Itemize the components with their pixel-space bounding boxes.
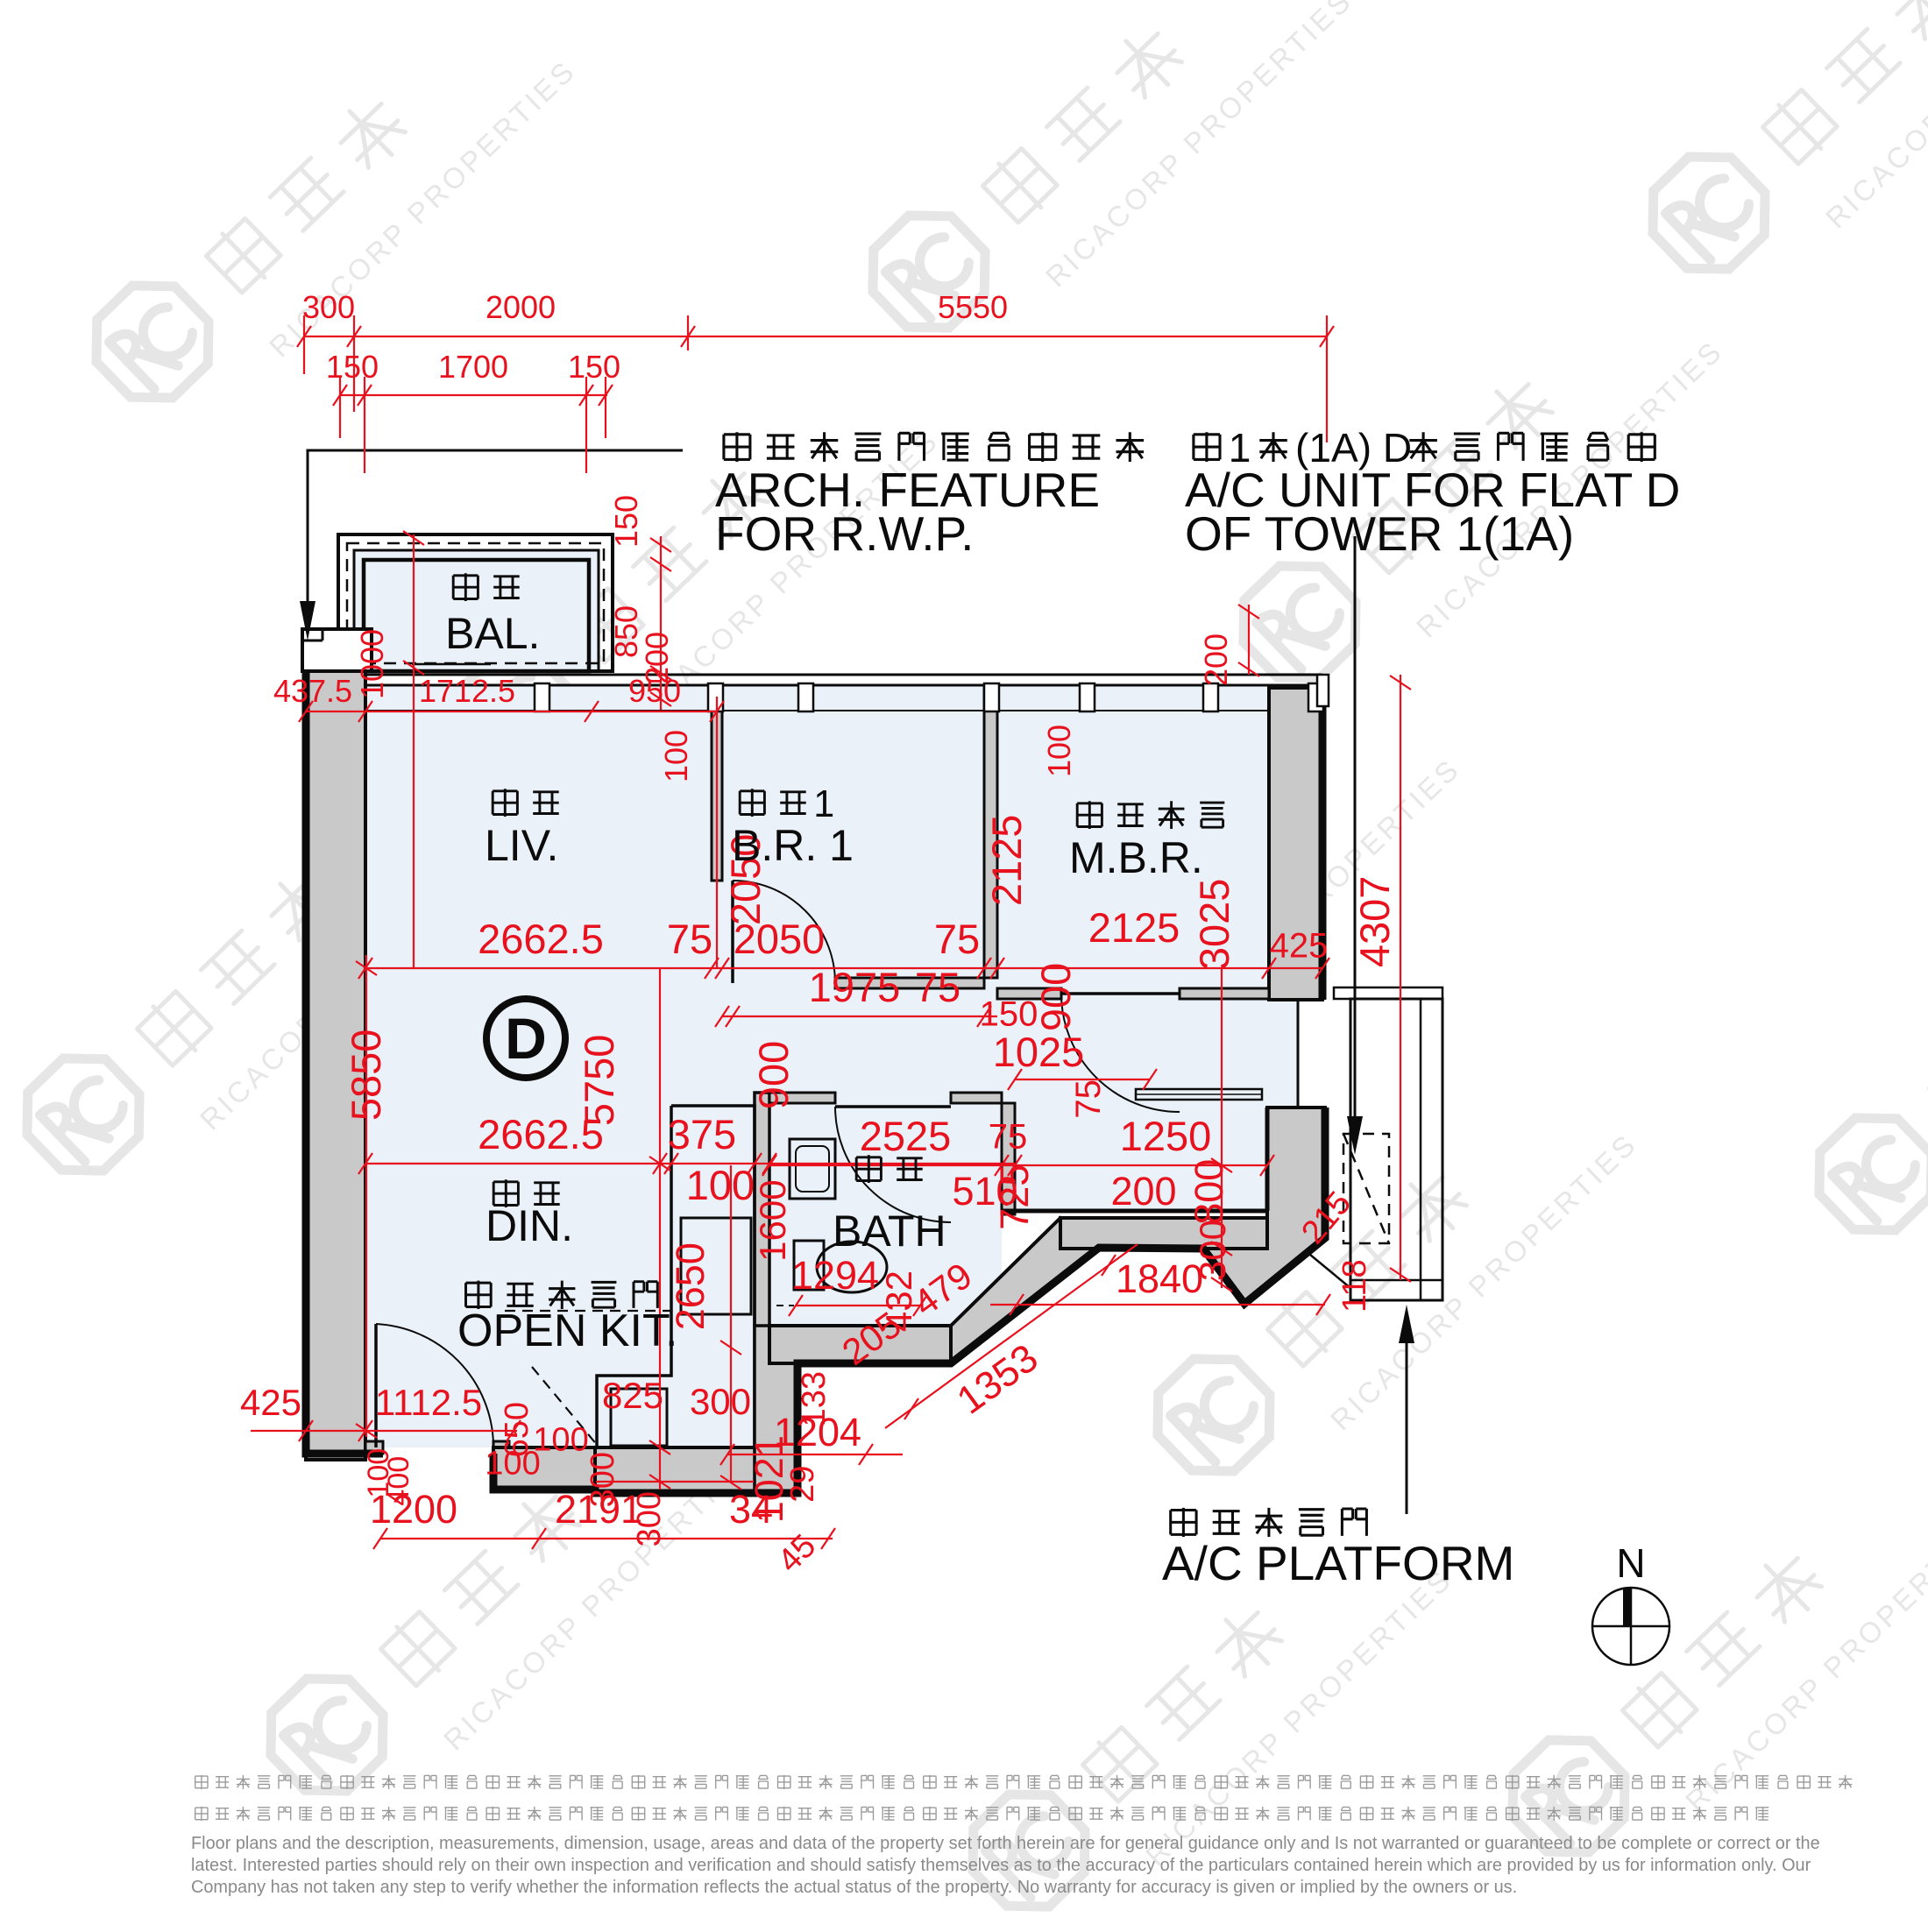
svg-text:BAL.: BAL.	[445, 609, 540, 658]
svg-text:3025: 3025	[1191, 879, 1237, 971]
svg-text:A/C PLATFORM: A/C PLATFORM	[1162, 1536, 1514, 1590]
svg-text:2191: 2191	[555, 1487, 642, 1532]
svg-text:133: 133	[796, 1371, 833, 1426]
svg-text:100: 100	[485, 1446, 540, 1483]
svg-text:1975: 1975	[809, 964, 901, 1010]
svg-text:1200: 1200	[370, 1487, 457, 1532]
svg-text:950: 950	[628, 673, 681, 709]
svg-text:425: 425	[1270, 926, 1329, 965]
svg-text:200: 200	[1110, 1169, 1176, 1214]
svg-text:2125: 2125	[1088, 904, 1180, 951]
svg-text:1: 1	[813, 783, 834, 825]
svg-text:1250: 1250	[1120, 1113, 1212, 1159]
svg-text:100: 100	[533, 1422, 588, 1459]
svg-text:118: 118	[1336, 1259, 1373, 1313]
svg-text:N: N	[1616, 1540, 1645, 1586]
svg-text:75: 75	[915, 964, 960, 1010]
svg-text:29: 29	[784, 1466, 821, 1503]
svg-text:100: 100	[686, 1162, 755, 1208]
svg-text:200: 200	[1198, 633, 1234, 686]
svg-text:BATH: BATH	[833, 1207, 946, 1256]
svg-text:DIN.: DIN.	[486, 1201, 573, 1250]
svg-text:75: 75	[989, 1117, 1028, 1156]
svg-text:150: 150	[608, 495, 644, 548]
svg-text:425: 425	[240, 1382, 301, 1423]
svg-text:LIV.: LIV.	[485, 821, 558, 870]
svg-text:2525: 2525	[860, 1113, 952, 1159]
svg-text:725: 725	[992, 1164, 1037, 1230]
svg-text:Floor plans and the descriptio: Floor plans and the description, measure…	[191, 1834, 1820, 1853]
svg-text:2000: 2000	[486, 289, 556, 325]
svg-text:1840: 1840	[1116, 1256, 1203, 1301]
svg-text:2662.5: 2662.5	[478, 916, 604, 962]
svg-text:1112.5: 1112.5	[375, 1382, 482, 1423]
svg-text:150: 150	[980, 994, 1038, 1033]
svg-text:1025: 1025	[993, 1029, 1085, 1075]
svg-text:D: D	[505, 1006, 547, 1071]
svg-text:1294: 1294	[791, 1253, 879, 1298]
svg-text:300: 300	[690, 1381, 751, 1422]
svg-text:OF TOWER 1(1A): OF TOWER 1(1A)	[1185, 506, 1574, 561]
svg-text:5750: 5750	[576, 1035, 622, 1127]
svg-text:1600: 1600	[752, 1179, 793, 1261]
svg-text:34: 34	[729, 1487, 773, 1532]
svg-text:M.B.R.: M.B.R.	[1069, 833, 1203, 882]
svg-text:latest. Interested parties sho: latest. Interested parties should rely o…	[191, 1856, 1811, 1875]
svg-text:75: 75	[667, 916, 712, 962]
svg-text:150: 150	[568, 349, 620, 385]
svg-text:150: 150	[326, 349, 379, 385]
svg-text:75: 75	[1069, 1079, 1108, 1119]
svg-text:900: 900	[1032, 963, 1079, 1031]
svg-text:5550: 5550	[938, 289, 1008, 325]
svg-text:300: 300	[302, 289, 355, 325]
svg-text:825: 825	[602, 1375, 663, 1416]
svg-text:B.R. 1: B.R. 1	[732, 821, 854, 870]
svg-text:900: 900	[750, 1041, 797, 1109]
svg-text:2125: 2125	[983, 815, 1030, 907]
svg-text:800: 800	[1187, 1159, 1231, 1225]
svg-text:5850: 5850	[343, 1030, 389, 1122]
svg-text:375: 375	[668, 1111, 736, 1157]
svg-text:1712.5: 1712.5	[419, 673, 515, 709]
svg-text:4307: 4307	[1351, 876, 1398, 968]
svg-text:OPEN KIT.: OPEN KIT.	[457, 1306, 677, 1356]
svg-text:Company has not taken any step: Company has not taken any step to verify…	[191, 1878, 1517, 1897]
svg-text:1000: 1000	[354, 629, 390, 699]
svg-text:100: 100	[1041, 725, 1077, 777]
svg-text:1700: 1700	[438, 349, 508, 385]
svg-text:75: 75	[934, 916, 980, 962]
svg-text:437.5: 437.5	[273, 673, 352, 709]
svg-text:100: 100	[658, 730, 694, 782]
svg-text:FOR R.W.P.: FOR R.W.P.	[715, 506, 974, 561]
